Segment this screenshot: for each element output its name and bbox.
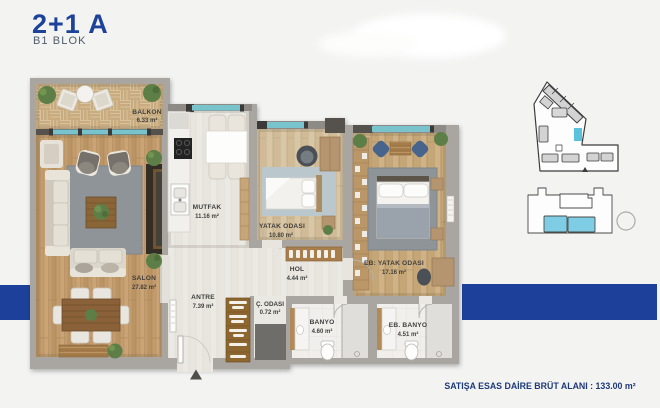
- svg-text:17.16 m²: 17.16 m²: [382, 269, 406, 276]
- svg-text:27.82 m²: 27.82 m²: [132, 284, 156, 291]
- svg-text:7.39 m²: 7.39 m²: [193, 303, 214, 310]
- svg-text:4.51 m²: 4.51 m²: [398, 331, 419, 338]
- svg-text:HOL: HOL: [290, 266, 305, 273]
- svg-text:BALKON: BALKON: [132, 109, 161, 116]
- svg-text:YATAK ODASI: YATAK ODASI: [259, 223, 305, 230]
- svg-text:ANTRE: ANTRE: [191, 294, 215, 301]
- svg-text:10.80 m²: 10.80 m²: [269, 232, 293, 239]
- svg-text:B1 BLOK: B1 BLOK: [33, 35, 87, 47]
- svg-text:6.33 m²: 6.33 m²: [137, 117, 158, 124]
- svg-text:MUTFAK: MUTFAK: [193, 204, 222, 211]
- svg-text:BANYO: BANYO: [310, 319, 335, 326]
- svg-text:SATIŞA ESAS DAİRE BRÜT ALANI :: SATIŞA ESAS DAİRE BRÜT ALANI : 133.00 m²: [444, 381, 635, 391]
- svg-text:EB: YATAK ODASI: EB: YATAK ODASI: [364, 260, 424, 267]
- svg-text:EB. BANYO: EB. BANYO: [389, 322, 427, 329]
- svg-text:Ç. ODASI: Ç. ODASI: [256, 301, 284, 308]
- svg-text:0.72 m²: 0.72 m²: [260, 309, 281, 316]
- svg-text:SALON: SALON: [132, 275, 156, 282]
- svg-text:11.16 m²: 11.16 m²: [195, 213, 219, 220]
- svg-text:4.60 m²: 4.60 m²: [312, 328, 333, 335]
- svg-text:4.44 m²: 4.44 m²: [287, 275, 308, 282]
